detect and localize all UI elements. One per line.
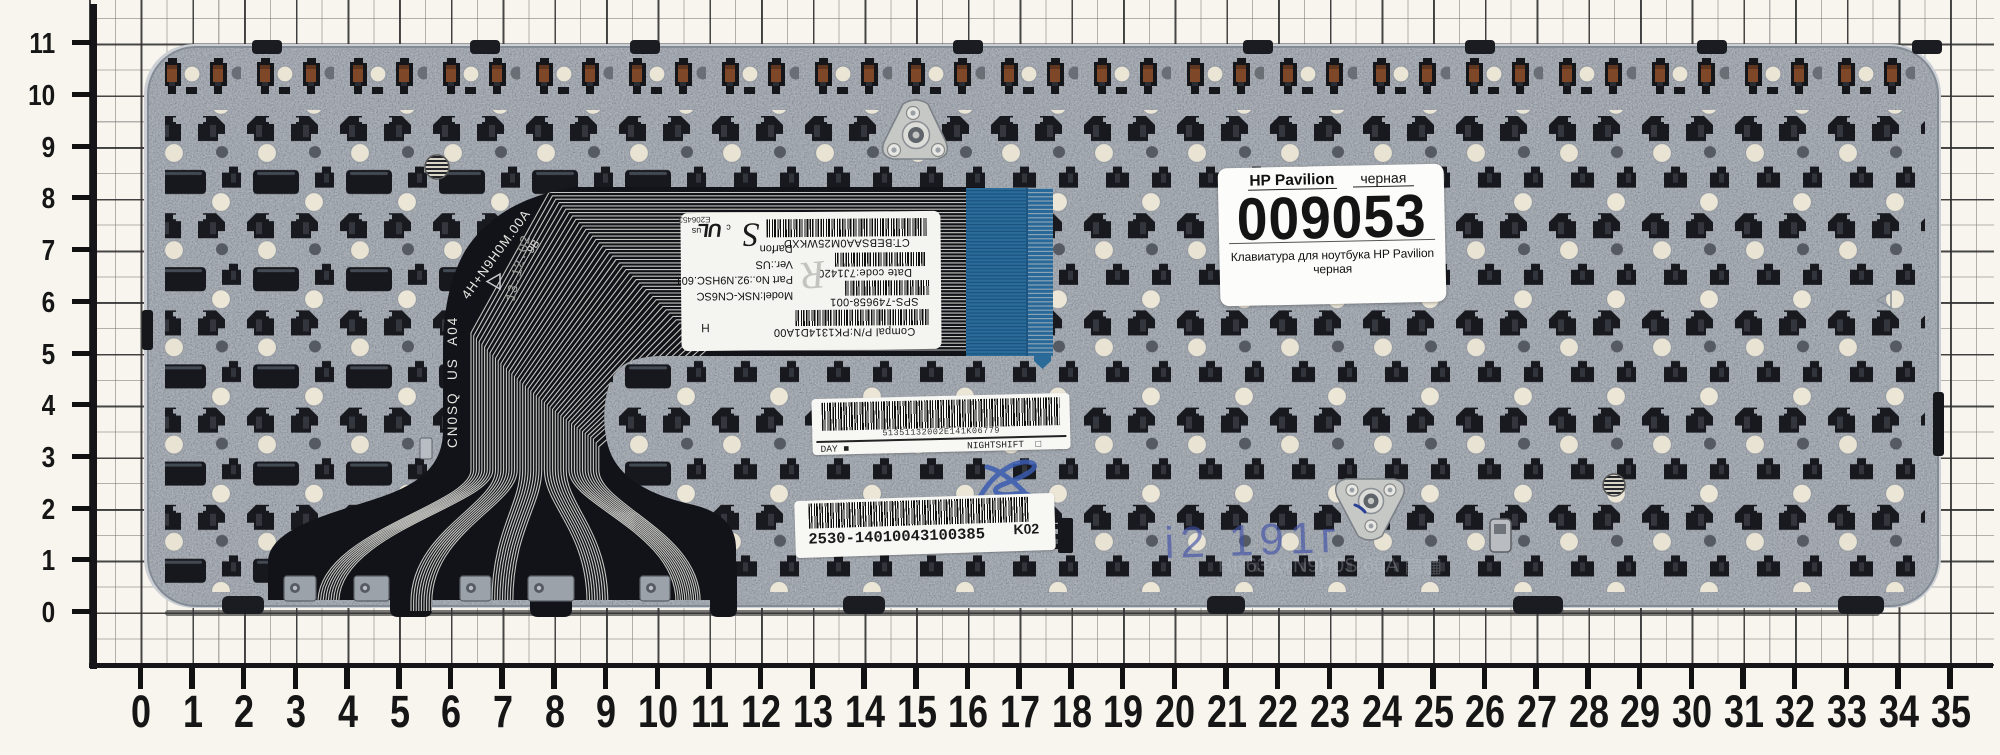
svg-text:HP63A+N9H0S.60A ▤▦: HP63A+N9H0S.60A ▤▦ xyxy=(1218,555,1442,577)
svg-text:CN0SQ US A04: CN0SQ US A04 xyxy=(445,316,460,448)
